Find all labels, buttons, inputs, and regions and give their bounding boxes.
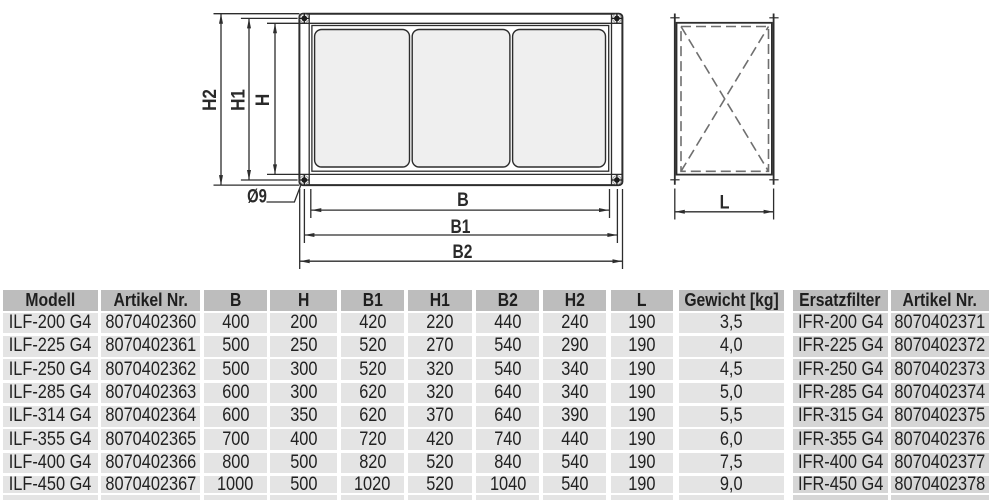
- svg-text:B2: B2: [453, 241, 473, 263]
- svg-text:B: B: [457, 189, 469, 211]
- svg-text:B1: B1: [451, 216, 471, 238]
- svg-text:H: H: [252, 94, 273, 106]
- svg-text:H2: H2: [199, 89, 220, 111]
- svg-text:Ø9: Ø9: [247, 186, 267, 207]
- svg-text:L: L: [720, 191, 730, 213]
- svg-text:H1: H1: [228, 89, 249, 111]
